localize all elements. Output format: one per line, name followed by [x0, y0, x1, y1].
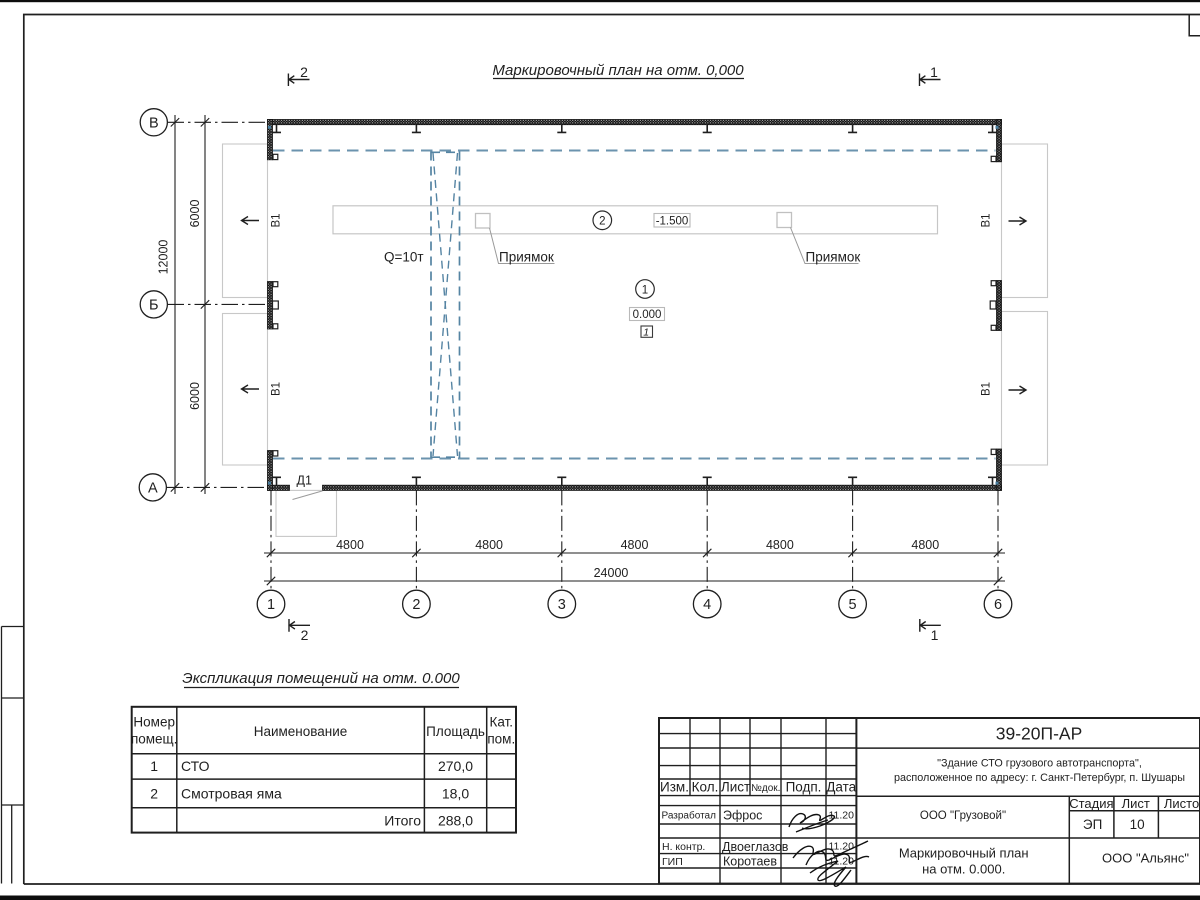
svg-text:В: В — [149, 115, 159, 131]
svg-text:2: 2 — [412, 597, 420, 613]
svg-text:В1: В1 — [981, 382, 993, 396]
svg-text:12000: 12000 — [157, 240, 171, 275]
svg-text:на отм. 0.000.: на отм. 0.000. — [922, 862, 1005, 877]
svg-text:ГИП: ГИП — [662, 856, 683, 868]
svg-text:Дата: Дата — [826, 780, 856, 795]
svg-text:Эфрос: Эфрос — [723, 809, 762, 823]
svg-text:Приямок: Приямок — [806, 250, 861, 265]
svg-text:Площадь: Площадь — [426, 724, 485, 739]
svg-text:"Здание СТО грузового автотран: "Здание СТО грузового автотранспорта", — [937, 758, 1142, 770]
svg-text:Смотровая яма: Смотровая яма — [181, 786, 282, 802]
svg-text:В1: В1 — [271, 213, 283, 227]
svg-text:№док.: №док. — [751, 783, 780, 794]
svg-text:18,0: 18,0 — [442, 786, 469, 802]
svg-text:4800: 4800 — [621, 538, 649, 552]
svg-text:Лист: Лист — [1122, 796, 1150, 811]
svg-text:39-20П-АР: 39-20П-АР — [996, 724, 1083, 744]
svg-text:Приямок: Приямок — [499, 250, 554, 265]
svg-text:Изм.: Изм. — [660, 780, 689, 795]
svg-text:Б: Б — [149, 297, 159, 313]
svg-text:Лист: Лист — [721, 780, 750, 795]
svg-text:Листов: Листов — [1164, 796, 1200, 811]
svg-text:Маркировочный план: Маркировочный план — [899, 846, 1029, 861]
svg-text:2: 2 — [599, 216, 605, 228]
svg-text:3: 3 — [558, 597, 566, 613]
svg-text:4800: 4800 — [911, 538, 939, 552]
svg-text:Д1: Д1 — [297, 474, 312, 488]
svg-text:10: 10 — [1130, 817, 1145, 832]
svg-text:Разработал: Разработал — [662, 810, 717, 822]
svg-text:24000: 24000 — [594, 566, 629, 580]
svg-text:помещ.: помещ. — [131, 732, 177, 747]
svg-text:ООО "Альянс": ООО "Альянс" — [1102, 851, 1189, 866]
svg-text:Q=10т: Q=10т — [384, 250, 424, 265]
svg-text:1: 1 — [267, 597, 275, 613]
svg-text:-1.500: -1.500 — [656, 215, 689, 227]
svg-text:6000: 6000 — [188, 382, 202, 410]
svg-text:Кол.: Кол. — [692, 780, 719, 795]
svg-text:Экспликация помещений на отм.: Экспликация помещений на отм. 0.000 — [182, 670, 460, 687]
svg-text:4: 4 — [703, 597, 711, 613]
svg-text:Маркировочный план на отм. 0,0: Маркировочный план на отм. 0,000 — [492, 62, 744, 79]
svg-text:2: 2 — [150, 786, 158, 802]
svg-text:пом.: пом. — [487, 732, 515, 747]
svg-text:6000: 6000 — [188, 200, 202, 228]
svg-text:Коротаев: Коротаев — [723, 855, 777, 869]
svg-text:Номер: Номер — [133, 715, 175, 730]
svg-text:5: 5 — [849, 597, 857, 613]
svg-text:4800: 4800 — [336, 538, 364, 552]
svg-text:0.000: 0.000 — [633, 309, 662, 321]
svg-text:расположенное по адресу: г. Са: расположенное по адресу: г. Санкт-Петерб… — [894, 772, 1185, 784]
svg-text:ЭП: ЭП — [1083, 817, 1102, 832]
svg-text:270,0: 270,0 — [438, 758, 473, 774]
svg-text:Наименование: Наименование — [254, 724, 348, 739]
svg-text:288,0: 288,0 — [438, 813, 473, 829]
svg-text:А: А — [148, 480, 158, 496]
svg-text:1: 1 — [643, 327, 649, 339]
svg-text:Подп.: Подп. — [786, 780, 822, 795]
svg-text:4800: 4800 — [475, 538, 503, 552]
svg-text:В1: В1 — [271, 382, 283, 396]
svg-text:ООО "Грузовой": ООО "Грузовой" — [920, 810, 1006, 822]
svg-text:6: 6 — [994, 597, 1002, 613]
svg-text:Стадия: Стадия — [1069, 796, 1113, 811]
svg-text:Кат.: Кат. — [490, 715, 514, 730]
svg-text:2: 2 — [301, 627, 309, 643]
svg-text:1: 1 — [150, 758, 158, 774]
svg-text:1: 1 — [930, 64, 938, 80]
svg-text:1: 1 — [931, 627, 939, 643]
svg-text:4800: 4800 — [766, 538, 794, 552]
svg-text:Н. контр.: Н. контр. — [662, 841, 705, 853]
svg-text:СТО: СТО — [181, 758, 210, 774]
svg-text:Итого: Итого — [384, 813, 421, 829]
svg-text:2: 2 — [300, 64, 308, 80]
svg-text:В1: В1 — [981, 213, 993, 227]
svg-text:1: 1 — [642, 284, 648, 296]
svg-text:Двоеглазов: Двоеглазов — [722, 840, 789, 854]
